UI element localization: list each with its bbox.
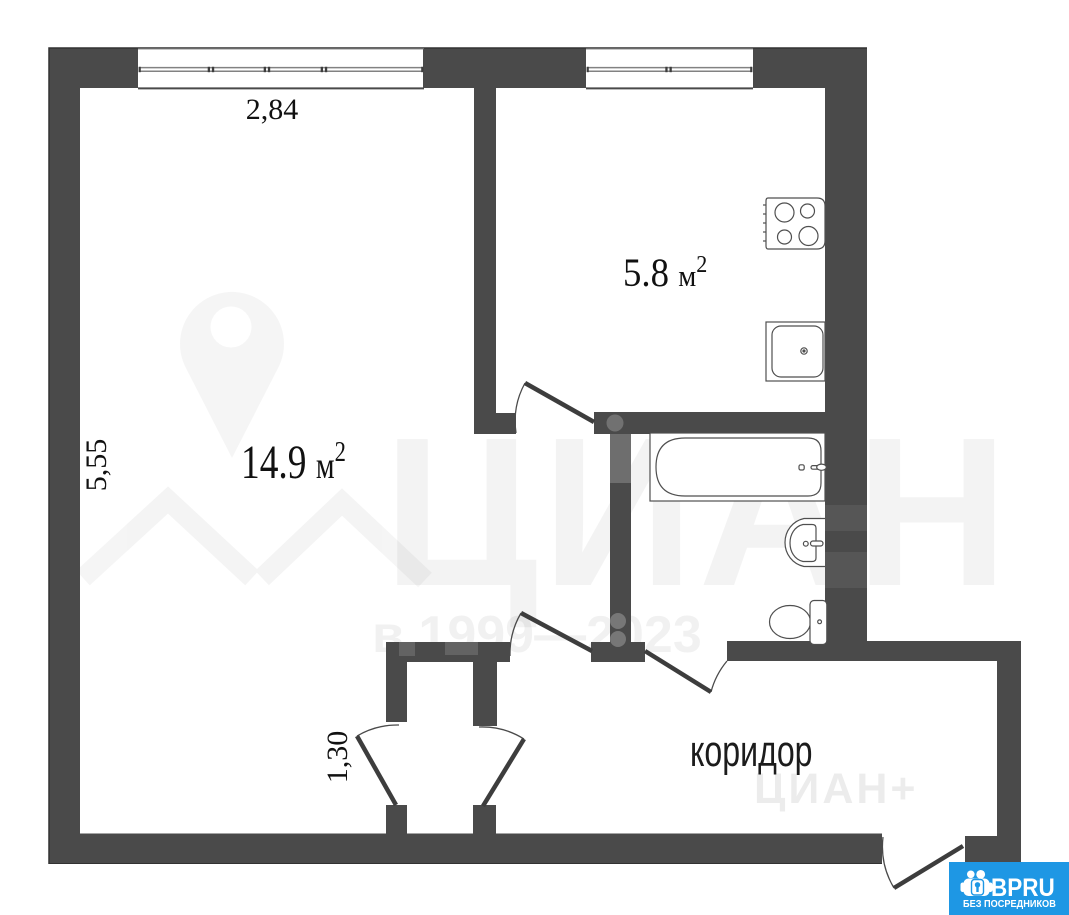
svg-text:2,84: 2,84: [246, 93, 299, 126]
svg-text:БЕЗ ПОСРЕДНИКОВ: БЕЗ ПОСРЕДНИКОВ: [963, 899, 1056, 910]
svg-text:коридор: коридор: [690, 727, 813, 776]
svg-text:5,55: 5,55: [80, 439, 113, 492]
svg-text:1,30: 1,30: [321, 731, 354, 784]
